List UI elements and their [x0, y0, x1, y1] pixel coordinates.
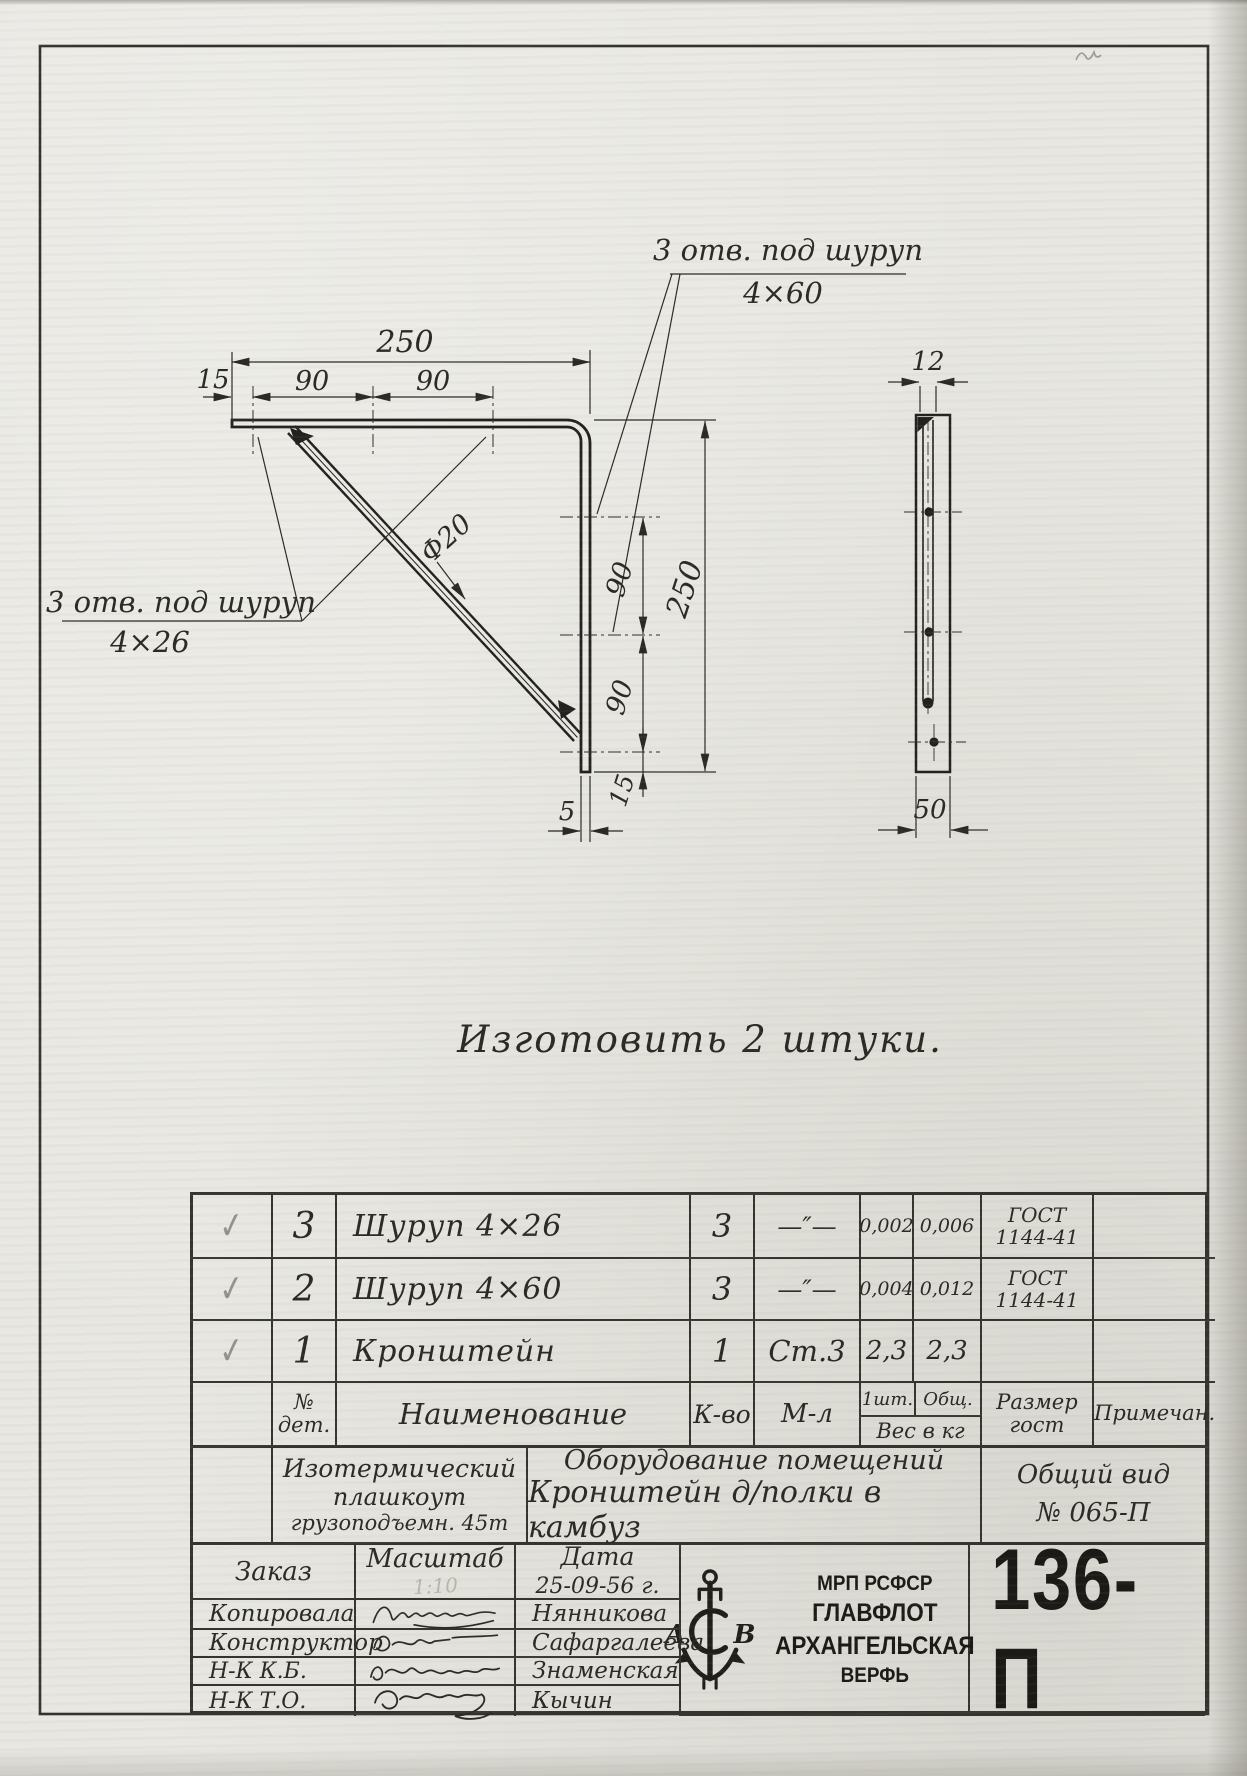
signature-squiggle — [360, 1658, 510, 1684]
dimension-lines — [62, 274, 988, 842]
header-weight-one: 1шт. — [861, 1383, 916, 1415]
gost-line2: 1144-41 — [995, 1226, 1078, 1248]
row-weight-one-cell: 0,004 — [861, 1259, 914, 1321]
header-number: №дет. — [273, 1383, 337, 1445]
row-check-cell: ✓ — [193, 1195, 273, 1259]
header-size: Размергост — [982, 1383, 1094, 1445]
date-label: Дата — [561, 1541, 635, 1574]
row-gost-cell: ГОСТ1144-41 — [982, 1195, 1094, 1259]
label-holes-left-line1: 3 отв. под шуруп — [46, 585, 316, 619]
parts-table: ✓ 3 Шуруп 4×26 3 —″— 0,002 0,006 ГОСТ114… — [190, 1192, 1208, 1448]
row-gost-cell — [982, 1321, 1094, 1383]
row-check-cell: ✓ — [193, 1321, 273, 1383]
label-holes-left-line2: 4×26 — [109, 625, 190, 659]
label-holes-top-line2: 4×60 — [742, 276, 823, 310]
pencil-mark — [1076, 52, 1101, 60]
title-line1: Оборудование помещений — [564, 1445, 944, 1476]
order-label-cell: Заказ — [193, 1545, 356, 1600]
weld-mark-bottom — [558, 700, 576, 719]
header-check-cell — [193, 1383, 273, 1445]
role-cell: Конструктор — [193, 1630, 356, 1658]
dim-right-total: 250 — [659, 556, 710, 622]
header-name: Наименование — [337, 1383, 691, 1445]
dim-right-span1: 90 — [600, 558, 640, 600]
drawing-number: 136-П — [991, 1531, 1184, 1729]
hole-centerlines — [253, 386, 660, 752]
org-cell: А В МРП РСФСР ГЛАВФЛОТ АРХАНГЕЛЬСКАЯ ВЕР… — [681, 1545, 970, 1716]
dim-top-span2: 90 — [416, 366, 450, 397]
signature-cell — [356, 1600, 516, 1630]
label-holes-top-line1: 3 отв. под шуруп — [653, 233, 923, 267]
role-cell: Н-К К.Б. — [193, 1658, 356, 1686]
org-line1: МРП РСФСР — [775, 1570, 974, 1597]
signature-squiggle — [360, 1630, 510, 1656]
role-cell: Копировала — [193, 1600, 356, 1630]
org-line4: ВЕРФЬ — [775, 1662, 974, 1689]
title-block: Заказ Масштаб 1:10 Дата 25-09-56 г. А — [190, 1545, 1208, 1714]
dim-right-offset: 15 — [603, 771, 640, 810]
title-line2: Кронштейн д/полки в камбуз — [528, 1476, 980, 1545]
header-size-line1: Размер — [996, 1391, 1077, 1414]
name-cell: Сафаргалеева — [516, 1630, 681, 1658]
row-note-cell — [1094, 1321, 1215, 1383]
row-note-cell — [1094, 1195, 1215, 1259]
header-no-line2: дет. — [278, 1414, 330, 1437]
row-weight-total-cell: 2,3 — [914, 1321, 982, 1383]
row-number-cell: 3 — [273, 1195, 337, 1259]
object-line2: плашкоут — [333, 1484, 466, 1512]
date-cell: Дата 25-09-56 г. — [516, 1545, 681, 1600]
object-line3: грузоподъемн. 45т — [291, 1511, 508, 1535]
project-blank-cell — [193, 1445, 273, 1545]
bracket-side-view — [904, 415, 966, 772]
gost-line1: ГОСТ — [1008, 1204, 1066, 1226]
scale-label: Масштаб — [366, 1545, 503, 1575]
row-gost-cell: ГОСТ1144-41 — [982, 1259, 1094, 1321]
row-weight-total-cell: 0,012 — [914, 1259, 982, 1321]
signature-cell — [356, 1658, 516, 1686]
pencil-checkmark: ✓ — [217, 1328, 247, 1374]
signature-squiggle — [360, 1686, 510, 1716]
scale-value-pencil: 1:10 — [412, 1574, 458, 1599]
org-line2: ГЛАВФЛОТ — [775, 1597, 974, 1630]
row-qty-cell: 3 — [691, 1195, 755, 1259]
object-line1: Изотермический — [283, 1455, 516, 1484]
header-note: Примечан. — [1094, 1383, 1215, 1445]
org-line3: АРХАНГЕЛЬСКАЯ — [775, 1630, 974, 1663]
row-weight-total-cell: 0,006 — [914, 1195, 982, 1259]
role-cell: Н-К Т.О. — [193, 1686, 356, 1716]
gost-line1: ГОСТ — [1008, 1267, 1066, 1289]
fabrication-note: Изготовить 2 штуки. — [455, 1018, 945, 1061]
org-text: МРП РСФСР ГЛАВФЛОТ АРХАНГЕЛЬСКАЯ ВЕРФЬ — [775, 1570, 974, 1690]
dim-right-span2: 90 — [600, 676, 640, 718]
dim-side-thickness: 12 — [911, 347, 944, 377]
row-weight-one-cell: 0,002 — [861, 1195, 914, 1259]
signature-squiggle — [360, 1599, 510, 1629]
dim-top-total: 250 — [375, 325, 433, 360]
dim-foot: 5 — [559, 797, 576, 827]
logo-letter-v: В — [732, 1620, 755, 1650]
row-material-cell: —″— — [755, 1259, 861, 1321]
row-number-cell: 1 — [273, 1321, 337, 1383]
pencil-checkmark: ✓ — [217, 1203, 247, 1249]
scale-cell: Масштаб 1:10 — [356, 1545, 516, 1600]
pencil-checkmark: ✓ — [217, 1266, 247, 1312]
gost-line2: 1144-41 — [995, 1289, 1078, 1311]
project-object-cell: Изотермический плашкоут грузоподъемн. 45… — [273, 1445, 528, 1545]
row-name-cell: Шуруп 4×26 — [337, 1195, 691, 1259]
header-material: М-л — [755, 1383, 861, 1445]
header-qty: К-во — [691, 1383, 755, 1445]
row-check-cell: ✓ — [193, 1259, 273, 1321]
row-qty-cell: 1 — [691, 1321, 755, 1383]
header-weight-group: 1шт. Общ. Вес в кг — [861, 1383, 982, 1445]
scanned-blueprint-sheet: { "colors": {"paper":"#e8e7e1","ink":"#2… — [0, 0, 1247, 1776]
row-material-cell: Ст.3 — [755, 1321, 861, 1383]
header-weight-total: Общ. — [916, 1383, 980, 1415]
signature-cell — [356, 1630, 516, 1658]
row-qty-cell: 3 — [691, 1259, 755, 1321]
name-cell: Знаменская — [516, 1658, 681, 1686]
header-no-line1: № — [294, 1391, 314, 1414]
date-value: 25-09-56 г. — [536, 1573, 660, 1602]
view-line2: № 065-П — [1037, 1495, 1151, 1533]
view-line1: Общий вид — [1017, 1457, 1170, 1495]
row-weight-one-cell: 2,3 — [861, 1321, 914, 1383]
dim-top-offset: 15 — [196, 365, 229, 395]
name-cell: Нянникова — [516, 1600, 681, 1630]
row-number-cell: 2 — [273, 1259, 337, 1321]
project-title-cell: Оборудование помещений Кронштейн д/полки… — [528, 1445, 982, 1545]
row-note-cell — [1094, 1259, 1215, 1321]
bracket-diagonal-rod — [288, 426, 581, 741]
row-name-cell: Кронштейн — [337, 1321, 691, 1383]
dim-top-span1: 90 — [295, 366, 329, 397]
drawing-number-cell: 136-П — [970, 1545, 1205, 1716]
dim-side-width: 50 — [913, 795, 946, 825]
row-name-cell: Шуруп 4×60 — [337, 1259, 691, 1321]
name-cell: Кычин — [516, 1686, 681, 1716]
header-size-line2: гост — [1010, 1414, 1065, 1437]
row-material-cell: —″— — [755, 1195, 861, 1259]
signature-cell — [356, 1686, 516, 1716]
dim-rod-diameter: Ф20 — [415, 508, 478, 569]
header-weight-label: Вес в кг — [861, 1417, 980, 1445]
